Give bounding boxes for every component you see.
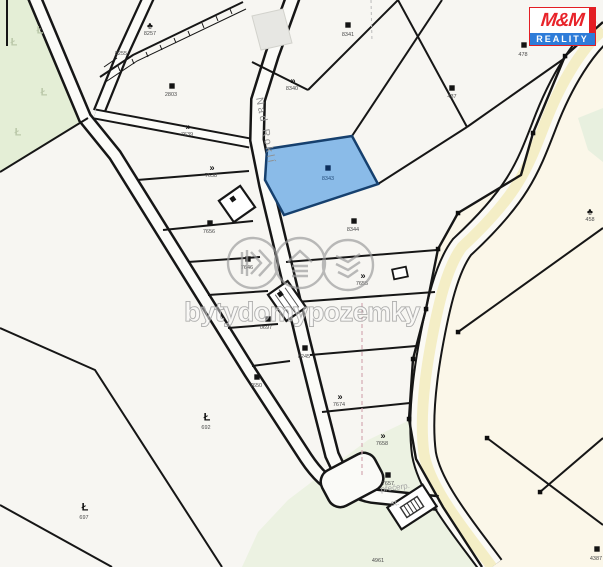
land-use-mark: Ł: [15, 127, 22, 139]
land-use-mark: Ł: [41, 87, 48, 99]
parcel-marker-4961: 4961: [372, 558, 384, 564]
svg-text:Ł: Ł: [82, 502, 89, 514]
svg-text:7674: 7674: [333, 402, 345, 408]
svg-text:Ł: Ł: [37, 25, 44, 37]
parcel-marker-692: Ł692: [201, 412, 210, 432]
svg-text:»: »: [360, 271, 365, 281]
logo-red-strip: [589, 8, 595, 33]
svg-text:8344: 8344: [347, 227, 359, 233]
svg-text:692: 692: [201, 425, 210, 431]
svg-text:8343: 8343: [322, 176, 334, 182]
svg-text:7658: 7658: [376, 441, 388, 447]
svg-text:♣: ♣: [587, 207, 593, 217]
land-use-mark: Ł: [37, 25, 44, 37]
svg-text:Ł: Ł: [204, 412, 211, 424]
watermark-text: bytydomypozemky: [184, 297, 420, 327]
svg-text:»: »: [209, 163, 214, 173]
svg-text:»: »: [337, 392, 342, 402]
parcel-marker-697: Ł697: [79, 502, 88, 522]
logo-title: M&M: [540, 11, 584, 30]
logo-top-section: M&M: [530, 8, 595, 33]
svg-text:8245: 8245: [298, 354, 310, 360]
svg-text:»: »: [290, 76, 295, 86]
svg-text:Ł: Ł: [15, 127, 22, 139]
svg-text:7639: 7639: [181, 132, 193, 138]
svg-text:♣: ♣: [147, 21, 153, 31]
svg-text:478: 478: [518, 52, 527, 58]
logo-subtitle: REALITY: [530, 33, 595, 45]
svg-text:2803: 2803: [165, 92, 177, 98]
svg-text:7656: 7656: [203, 229, 215, 235]
area-note-line2: st.: [390, 498, 400, 508]
svg-text:Ł: Ł: [41, 87, 48, 99]
land-use-mark: Ł: [11, 37, 18, 49]
svg-text:7650: 7650: [250, 383, 262, 389]
svg-text:8341: 8341: [342, 32, 354, 38]
building-small: [392, 267, 408, 280]
cadastral-map-canvas[interactable]: Nad Roklí přečerp. st. ♣825782552803»763…: [0, 0, 603, 567]
svg-text:8257: 8257: [144, 31, 156, 37]
mm-reality-logo: M&M REALITY: [529, 7, 596, 46]
svg-text:697: 697: [79, 515, 88, 521]
svg-text:»: »: [185, 122, 190, 132]
svg-text:»: »: [380, 431, 385, 441]
svg-text:7657: 7657: [382, 481, 394, 487]
svg-text:458: 458: [585, 217, 594, 223]
svg-text:Ł: Ł: [11, 37, 18, 49]
svg-text:8255: 8255: [115, 51, 127, 57]
svg-text:437: 437: [447, 94, 456, 100]
svg-text:4387: 4387: [590, 556, 602, 562]
svg-text:4961: 4961: [372, 558, 384, 564]
parcel-marker-8255: 8255: [115, 51, 127, 57]
svg-text:8340: 8340: [286, 86, 298, 92]
svg-text:7638: 7638: [205, 173, 217, 179]
